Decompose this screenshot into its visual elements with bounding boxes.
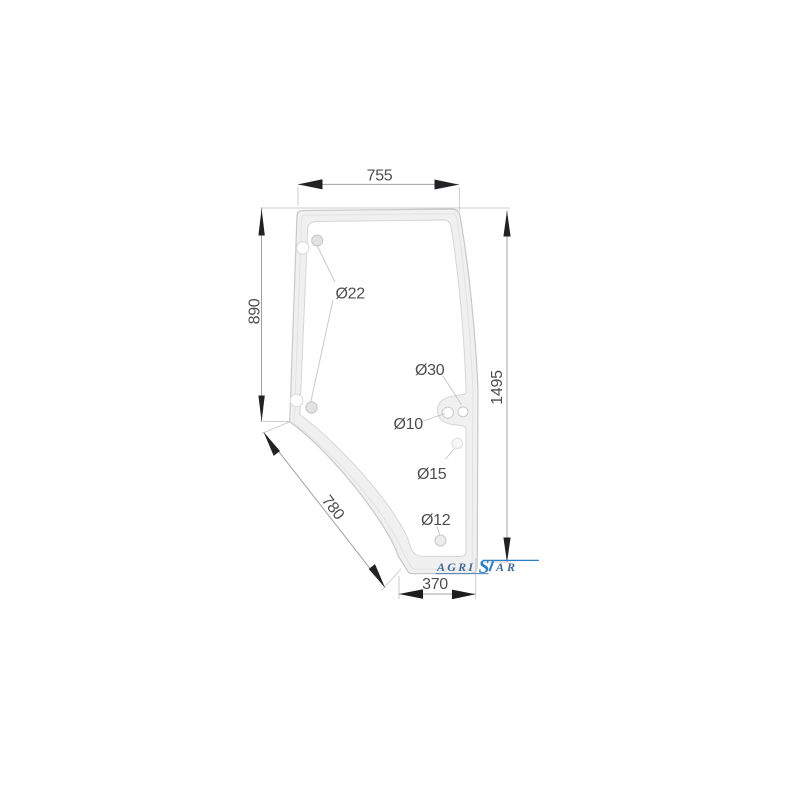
svg-text:AR: AR xyxy=(495,560,518,574)
svg-text:890: 890 xyxy=(246,298,263,324)
svg-text:1495: 1495 xyxy=(489,370,506,405)
svg-text:Ø15: Ø15 xyxy=(417,466,447,483)
svg-text:AGRI: AGRI xyxy=(436,560,475,574)
svg-text:780: 780 xyxy=(318,492,348,523)
svg-text:755: 755 xyxy=(367,168,393,185)
svg-text:Ø22: Ø22 xyxy=(336,286,366,303)
svg-text:Ø10: Ø10 xyxy=(394,416,424,433)
svg-text:Ø12: Ø12 xyxy=(421,512,451,529)
svg-text:370: 370 xyxy=(422,576,448,593)
svg-text:Ø30: Ø30 xyxy=(415,362,445,379)
